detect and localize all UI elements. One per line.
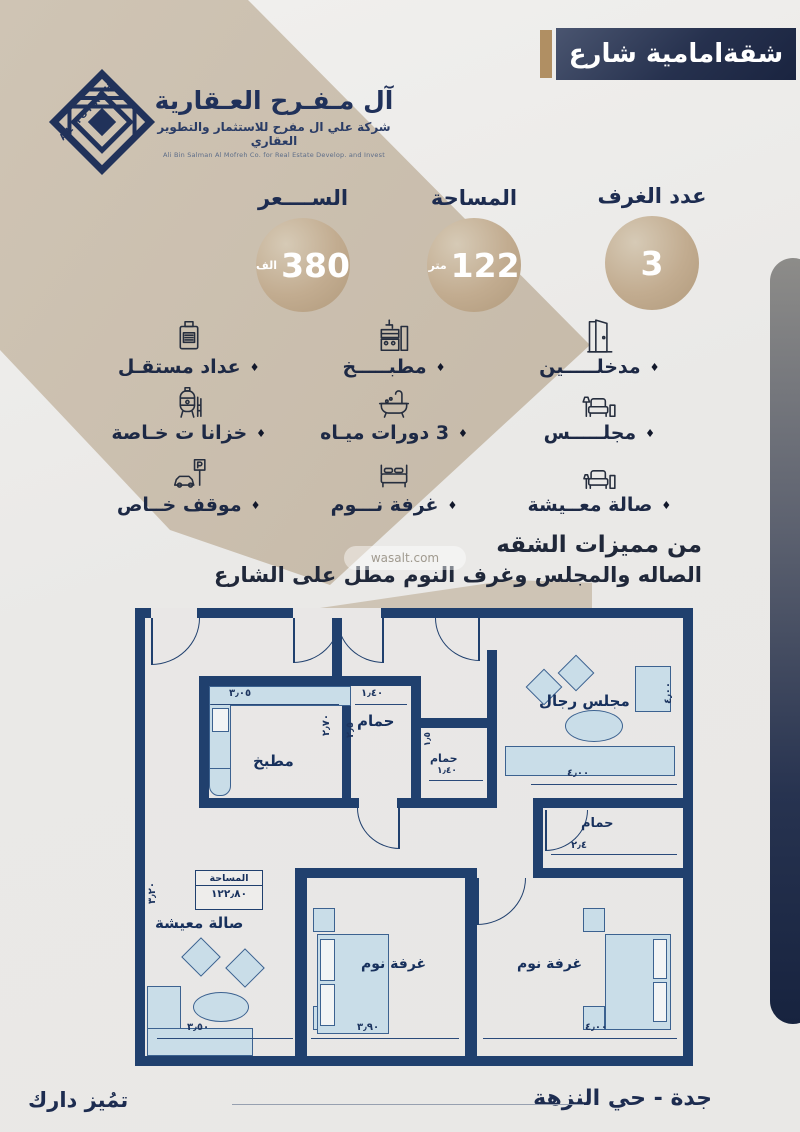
stat-rooms-value: 3 bbox=[641, 247, 664, 280]
bullet-icon: ♦ bbox=[645, 427, 655, 440]
wall bbox=[381, 608, 693, 618]
dimension-label: ٢٫٤ bbox=[571, 840, 587, 851]
feature-entrances-label: مدخلـــــين bbox=[539, 356, 641, 378]
logo-text-block: آل مـفـرح العـقارية شركة علي ال مفرح للا… bbox=[148, 86, 400, 159]
wall bbox=[135, 608, 145, 1066]
majlis-sofa-icon bbox=[580, 383, 618, 421]
feature-meter-label: عداد مستقـل bbox=[118, 356, 241, 378]
dimension-label: ١٫٥ bbox=[423, 732, 433, 746]
dimension-line bbox=[429, 780, 483, 781]
bullet-icon: ♦ bbox=[256, 427, 266, 440]
wall bbox=[533, 808, 543, 868]
stat-area-circle: 122 متر bbox=[427, 218, 521, 312]
dimension-line bbox=[311, 1038, 459, 1039]
door-arc-icon bbox=[337, 618, 384, 663]
room-label-bath1: حمام bbox=[357, 712, 395, 730]
wall bbox=[295, 868, 307, 1066]
area-box-title: المساحة bbox=[196, 871, 262, 886]
kitchen-icon bbox=[375, 317, 413, 355]
bed-icon bbox=[375, 455, 413, 493]
living-chair bbox=[181, 937, 221, 977]
kitchen-counter bbox=[209, 768, 231, 796]
stat-price-unit: الف bbox=[256, 259, 277, 272]
meter-icon bbox=[170, 317, 208, 355]
stat-price-circle: 380 الف bbox=[256, 218, 350, 312]
room-label-kitchen: مطبخ bbox=[253, 752, 294, 770]
bullet-icon: ♦ bbox=[250, 361, 260, 374]
feature-bathrooms-label: 3 دورات ميـاه bbox=[320, 422, 449, 444]
feature-tanks-label: خزانا ت خـاصة bbox=[111, 422, 247, 444]
stat-price-label: الســــعر bbox=[241, 186, 365, 210]
area-box-value: ١٢٢٫٨٠ bbox=[196, 886, 262, 900]
dimension-label: ٣٫٥٠ bbox=[187, 1022, 209, 1033]
banner-title: شقةامامية شارع bbox=[556, 28, 796, 80]
majlis-table bbox=[565, 710, 623, 742]
feature-bedroom-label: غرفة نـــوم bbox=[331, 494, 439, 516]
wall bbox=[295, 868, 477, 878]
pillow bbox=[653, 939, 667, 979]
living-table bbox=[193, 992, 249, 1022]
bullet-icon: ♦ bbox=[251, 499, 261, 512]
features-grid: ♦ مدخلـــــين ♦ مطبـــــخ ♦ عداد مستقـل bbox=[86, 310, 702, 522]
dimension-label: ١٫٤٠ bbox=[361, 688, 383, 699]
almofreh-logo-icon bbox=[48, 58, 156, 186]
feature-living-label: صالة معــيشة bbox=[527, 494, 652, 516]
water-tank-icon bbox=[170, 383, 208, 421]
dimension-line bbox=[531, 784, 677, 785]
dimension-label: ٢٫٧٠ bbox=[321, 714, 332, 736]
wall bbox=[135, 1056, 693, 1066]
right-side-bar bbox=[770, 258, 800, 1024]
living-chair bbox=[225, 948, 265, 988]
feature-majlis: ♦ مجلـــــس bbox=[497, 378, 702, 444]
pillow bbox=[320, 939, 335, 981]
bullet-icon: ♦ bbox=[448, 499, 458, 512]
door-arc-icon bbox=[357, 808, 400, 849]
living-room-icon bbox=[580, 455, 618, 493]
dimension-label: ٣٫٩٠ bbox=[357, 1022, 379, 1033]
company-title: آل مـفـرح العـقارية bbox=[148, 86, 400, 115]
area-box: المساحة ١٢٢٫٨٠ bbox=[195, 870, 263, 910]
room-label-bedroom1: غرفة نوم bbox=[361, 956, 426, 972]
feature-bedroom: ♦ غرفة نـــوم bbox=[291, 444, 496, 516]
wall bbox=[533, 798, 683, 808]
stat-price: الســــعر 380 الف bbox=[241, 186, 365, 312]
pillow bbox=[653, 982, 667, 1022]
feature-entrances: ♦ مدخلـــــين bbox=[497, 310, 702, 378]
feature-parking-label: موقف خــاص bbox=[117, 494, 242, 516]
stat-area-unit: متر bbox=[428, 259, 446, 272]
wasalt-watermark: wasalt.com bbox=[344, 546, 466, 570]
room-label-bath3: حمام bbox=[581, 816, 614, 831]
flyer-page: شقةامامية شارع ALMOFREH آل مـفـرح العـقا… bbox=[0, 0, 800, 1132]
pillow bbox=[320, 984, 335, 1026]
dimension-line bbox=[157, 1038, 293, 1039]
wall bbox=[465, 868, 477, 1066]
feature-tanks: ♦ خزانا ت خـاصة bbox=[86, 378, 291, 444]
stat-area-label: المساحة bbox=[412, 186, 536, 210]
wall bbox=[487, 650, 497, 798]
stat-rooms-circle: 3 bbox=[605, 216, 699, 310]
dimension-line bbox=[483, 1038, 677, 1039]
feature-parking: ♦ موقف خــاص bbox=[86, 444, 291, 516]
kitchen-sink bbox=[212, 708, 229, 732]
footer-tagline: تمُيز دارك bbox=[28, 1088, 128, 1112]
dimension-label: ٤٫٠٠ bbox=[585, 1022, 607, 1033]
stat-area-value: 122 bbox=[451, 249, 520, 282]
majlis-sofa bbox=[505, 746, 675, 776]
banner-gold-bar bbox=[540, 30, 552, 78]
wall bbox=[397, 798, 497, 808]
bullet-icon: ♦ bbox=[650, 361, 660, 374]
dimension-label: ٤٫٠٠ bbox=[663, 682, 674, 704]
bullet-icon: ♦ bbox=[436, 361, 446, 374]
footer-divider bbox=[232, 1104, 584, 1105]
nightstand bbox=[313, 908, 335, 932]
dimension-label: ١٫٤٠ bbox=[437, 766, 457, 776]
dimension-line bbox=[551, 854, 677, 855]
door-icon bbox=[580, 317, 618, 355]
floor-plan: المساحة ١٢٢٫٨٠ مطبخ حمام حمام مجلس رجال … bbox=[135, 608, 693, 1066]
wall bbox=[533, 868, 693, 878]
parking-icon bbox=[170, 455, 208, 493]
stat-area: المساحة 122 متر bbox=[412, 186, 536, 312]
dimension-label: ٣٫٠٥ bbox=[229, 688, 251, 699]
wall bbox=[199, 676, 209, 798]
footer-location: جدة - حي النزهة bbox=[533, 1086, 712, 1111]
room-label-living: صالة معيشة bbox=[155, 914, 243, 932]
feature-majlis-label: مجلـــــس bbox=[544, 422, 637, 444]
stat-rooms: عدد الغرف 3 bbox=[590, 184, 714, 310]
wall bbox=[421, 718, 497, 728]
feature-kitchen: ♦ مطبـــــخ bbox=[291, 310, 496, 378]
dimension-label: ٣٫٢٠ bbox=[147, 882, 158, 904]
wall bbox=[411, 676, 421, 798]
room-label-bedroom2: غرفة نوم bbox=[517, 956, 582, 972]
wall bbox=[199, 676, 421, 686]
room-label-bath2: حمام bbox=[430, 752, 458, 765]
feature-kitchen-label: مطبـــــخ bbox=[342, 356, 426, 378]
bullet-icon: ♦ bbox=[458, 427, 468, 440]
dimension-line bbox=[355, 704, 407, 705]
feature-meter: ♦ عداد مستقـل bbox=[86, 310, 291, 378]
feature-living: ♦ صالة معــيشة bbox=[497, 444, 702, 516]
company-subtitle: شركة علي ال مفرح للاستثمار والتطوير العق… bbox=[148, 120, 400, 148]
dimension-line bbox=[211, 704, 339, 705]
door-arc-icon bbox=[435, 618, 480, 661]
wall bbox=[199, 798, 359, 808]
wall bbox=[332, 618, 342, 676]
wall bbox=[197, 608, 293, 618]
bullet-icon: ♦ bbox=[661, 499, 671, 512]
bathtub-icon bbox=[375, 383, 413, 421]
dimension-label: ٢٫٥ bbox=[345, 722, 356, 738]
stat-rooms-label: عدد الغرف bbox=[590, 184, 714, 208]
door-arc-icon bbox=[151, 618, 200, 665]
stat-price-value: 380 bbox=[281, 249, 350, 282]
door-arc-icon bbox=[477, 878, 526, 925]
nightstand bbox=[583, 908, 605, 932]
feature-bathrooms: ♦ 3 دورات ميـاه bbox=[291, 378, 496, 444]
room-label-majlis: مجلس رجال bbox=[539, 692, 630, 710]
wall bbox=[683, 608, 693, 1066]
company-subtitle-en: Ali Bin Salman Al Mofreh Co. for Real Es… bbox=[148, 151, 400, 159]
majlis-cushion bbox=[558, 655, 595, 692]
dimension-label: ٤٫٠٠ bbox=[567, 768, 589, 779]
